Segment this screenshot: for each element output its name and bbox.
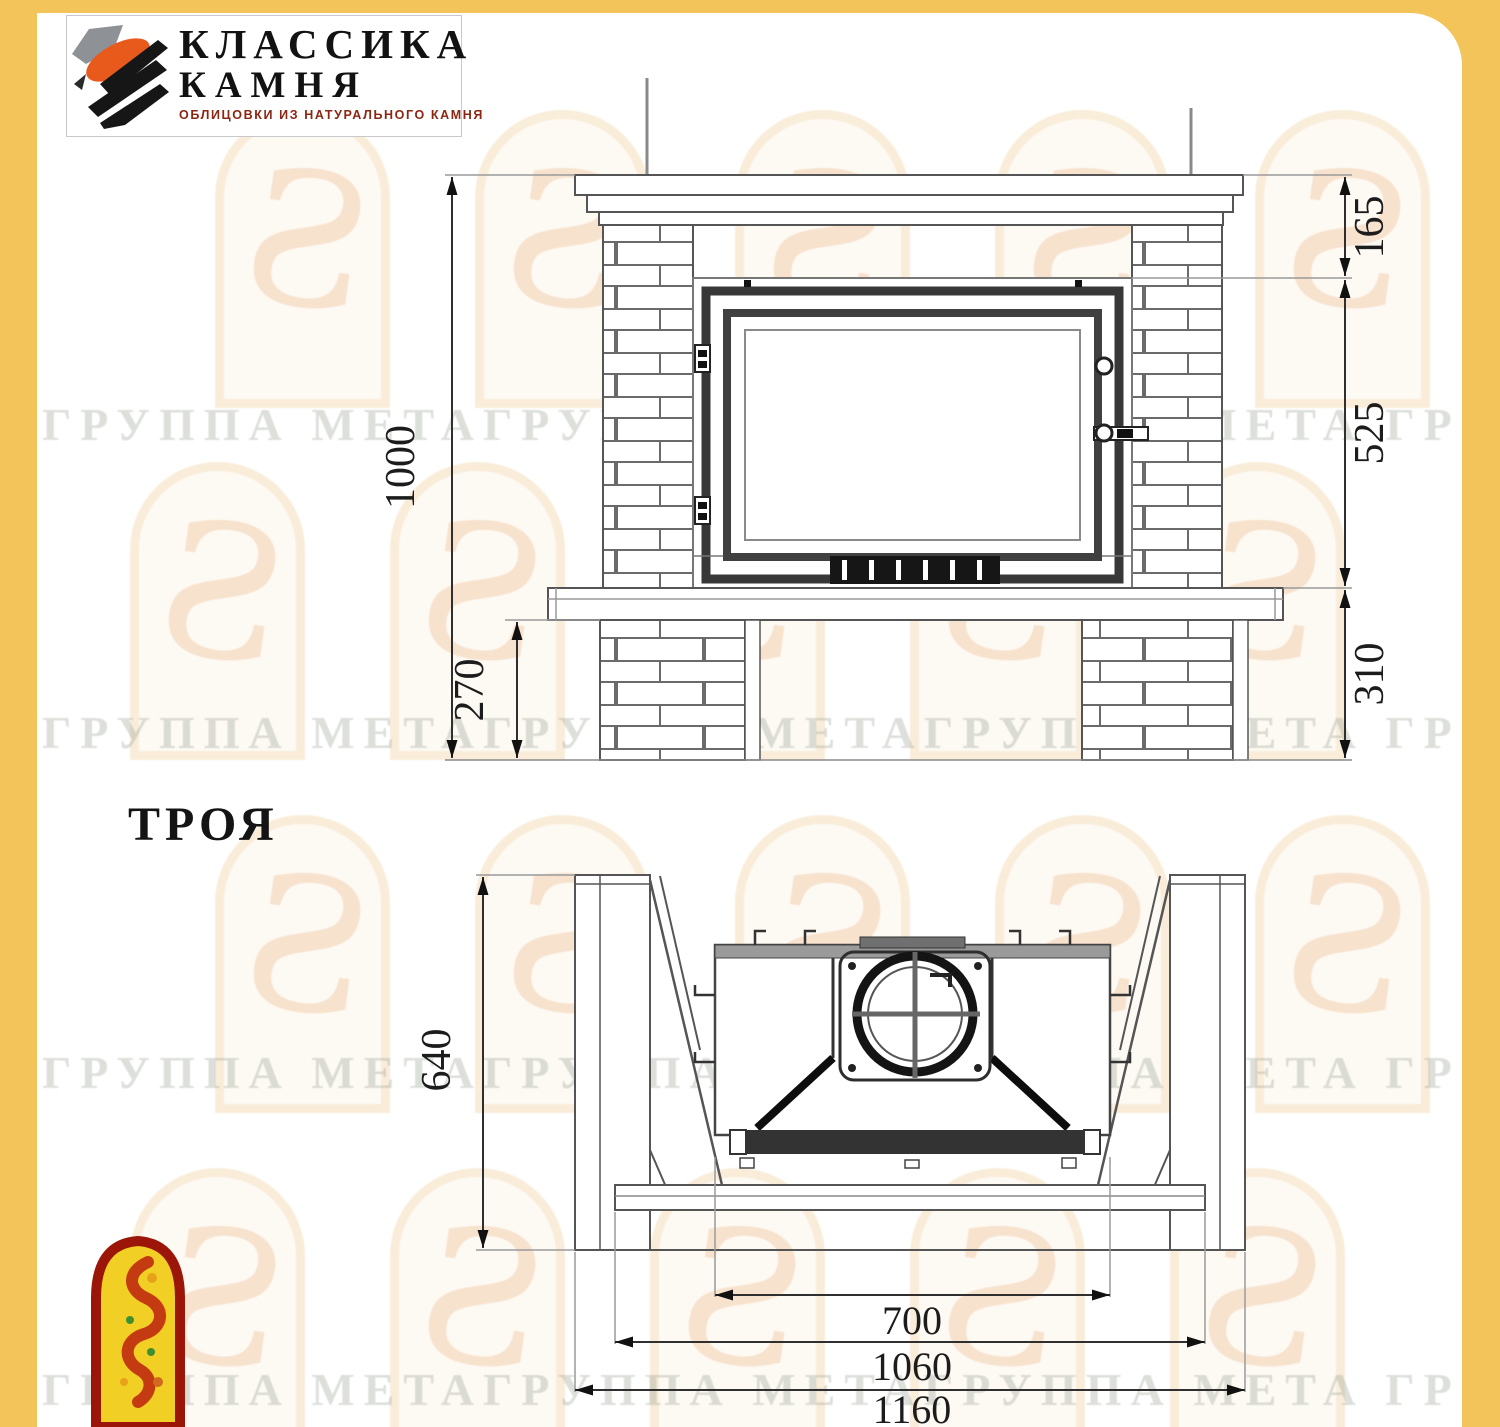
door-glass: [745, 330, 1080, 540]
dimension-label-firebox-width: 700: [882, 1298, 942, 1343]
dimension-firebox-height: 525: [1340, 280, 1394, 586]
brand-arch-icon: [88, 1232, 188, 1427]
base-slab: [615, 1185, 1205, 1210]
logo-title-line2: КАМНЯ: [179, 67, 484, 104]
dimension-plinth-height: 270: [447, 622, 523, 758]
dimension-label-body-width: 1060: [872, 1344, 952, 1389]
hearth-slab: [548, 588, 1283, 620]
dimension-body-width: 1060: [615, 1337, 1205, 1390]
model-name: ТРОЯ: [128, 797, 279, 852]
dimension-label-total-height: 1000: [378, 425, 424, 509]
dimension-firebox-width: 700: [715, 1290, 1110, 1344]
dimension-label-total-width: 1160: [873, 1387, 952, 1427]
dimension-label-mantel-height: 165: [1347, 196, 1393, 259]
mantel-shelf: [575, 175, 1243, 225]
front-view-drawing: 1000 270 165 525 310: [370, 60, 1420, 790]
brick-pillar-right: [1132, 225, 1222, 588]
dimension-mantel-height: 165: [1340, 177, 1394, 276]
dimension-label-firebox-height: 525: [1347, 402, 1393, 465]
watermark-arch: Ƨ: [215, 110, 390, 408]
dimension-label-base-height: 310: [1347, 643, 1393, 706]
base-pedestal-left: [600, 620, 760, 760]
dimension-depth: 640: [415, 877, 489, 1248]
base-pedestal-right: [1082, 620, 1248, 760]
plan-view-drawing: 640 700 1060 1160: [415, 850, 1270, 1427]
brick-pillar-left: [603, 225, 693, 588]
logo-text: КЛАССИКА КАМНЯ ОБЛИЦОВКИ ИЗ НАТУРАЛЬНОГО…: [179, 24, 484, 122]
angled-wall-left: [650, 876, 722, 1210]
dimension-base-height: 310: [1340, 590, 1394, 758]
logo-subtitle: ОБЛИЦОВКИ ИЗ НАТУРАЛЬНОГО КАМНЯ: [179, 108, 484, 122]
logo-title-line1: КЛАССИКА: [179, 24, 484, 65]
company-logo: КЛАССИКА КАМНЯ ОБЛИЦОВКИ ИЗ НАТУРАЛЬНОГО…: [66, 15, 462, 137]
dimension-total-height: 1000: [378, 177, 458, 758]
dimension-total-width: 1160: [575, 1385, 1245, 1427]
dimension-label-plinth-height: 270: [447, 659, 493, 722]
dimension-label-depth: 640: [415, 1029, 460, 1092]
page: { "page": { "frame_color": "#f2c45a", "c…: [0, 0, 1500, 1427]
vent-grille: [830, 556, 1000, 584]
insert-front-band: [730, 1130, 1100, 1168]
stone-slabs-icon: [69, 22, 175, 134]
